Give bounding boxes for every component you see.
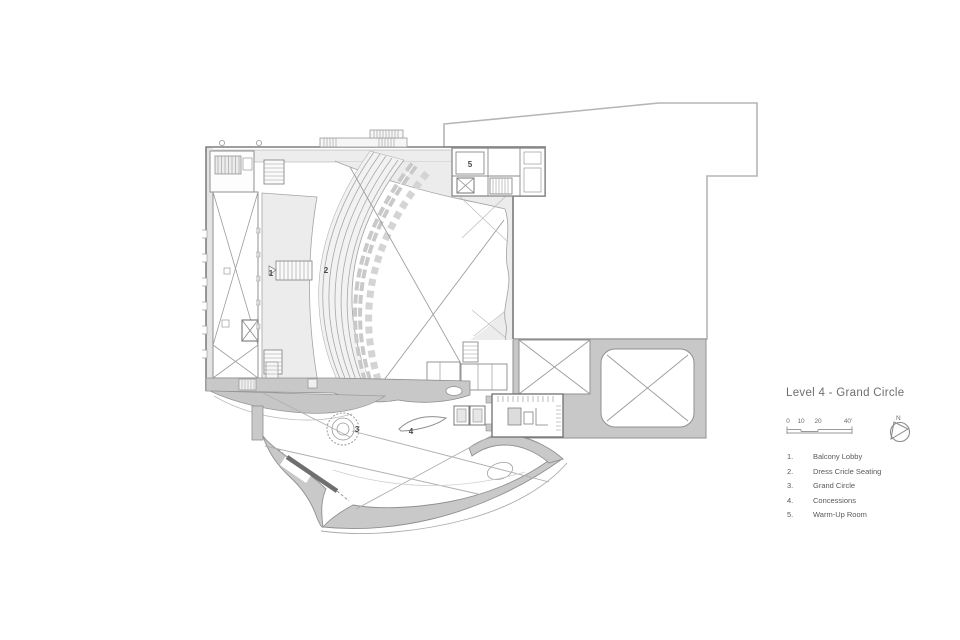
marker-5: 5 — [468, 160, 473, 169]
elevator-x-box — [242, 320, 258, 341]
marker-1: 1 — [269, 269, 274, 278]
scale-tick-20: 20 — [814, 418, 822, 425]
canopy-left-bar — [252, 406, 263, 440]
stair-hatch — [490, 178, 512, 194]
band-opening — [446, 387, 462, 396]
legend-item: 4. Concessions — [787, 494, 881, 509]
legend-item-number: 2. — [787, 465, 813, 480]
elevator-pair — [454, 406, 485, 425]
scale-bar-graphic — [787, 427, 852, 435]
adjacent-massing — [444, 103, 757, 339]
concessions-counter — [399, 417, 446, 431]
north-arrow: N — [885, 412, 915, 444]
canopy-roof — [210, 391, 567, 534]
legend-item-label: Concessions — [813, 494, 856, 509]
legend-item-label: Dress Cricle Seating — [813, 465, 881, 480]
canopy-right-hook — [469, 435, 563, 463]
canopy-bottom-crescent — [323, 459, 562, 528]
roof-vent-circle — [256, 140, 261, 145]
scale-tick-10: 10 — [797, 418, 805, 425]
shaft-x-box-square — [519, 340, 590, 394]
concessions-room — [486, 394, 563, 437]
marker-3: 3 — [355, 425, 360, 434]
scale-tick-40: 40' — [844, 418, 852, 425]
floor-plan-drawing: 1 2 3 4 5 — [0, 0, 960, 640]
canopy-opening — [485, 459, 515, 482]
legend-item-number: 1. — [787, 450, 813, 465]
warmup-room-suite — [452, 148, 545, 196]
roof-vent-circle — [219, 140, 224, 145]
marker-2: 2 — [324, 266, 329, 275]
legend-item-label: Grand Circle — [813, 479, 855, 494]
legend-item: 1. Balcony Lobby — [787, 450, 881, 465]
stair-core-nw — [210, 151, 254, 192]
legend: 1. Balcony Lobby 2. Dress Cricle Seating… — [787, 450, 881, 523]
theater-block — [202, 130, 545, 402]
page-title: Level 4 - Grand Circle — [786, 387, 904, 399]
legend-item: 2. Dress Cricle Seating — [787, 465, 881, 480]
scale-bar: 0 10 20 40' — [784, 414, 864, 438]
legend-item: 5. Warm-Up Room — [787, 508, 881, 523]
legend-item-number: 3. — [787, 479, 813, 494]
north-label: N — [896, 415, 901, 422]
seat-blocks-row — [369, 173, 427, 383]
roof-vents — [219, 130, 407, 147]
shaft-x-box-rounded — [601, 349, 694, 427]
floor-plan-sheet: 1 2 3 4 5 Level 4 - Grand Circle 0 10 20… — [0, 0, 960, 640]
canopy-left-blade — [263, 436, 326, 527]
legend-item-number: 4. — [787, 494, 813, 509]
legend-item-label: Warm-Up Room — [813, 508, 867, 523]
legend-item-number: 5. — [787, 508, 813, 523]
marker-4: 4 — [409, 427, 414, 436]
scale-tick-0: 0 — [786, 418, 790, 425]
legend-item-label: Balcony Lobby — [813, 450, 862, 465]
lobby-stair-top — [264, 160, 284, 184]
legend-item: 3. Grand Circle — [787, 479, 881, 494]
elevator-x-box — [457, 178, 474, 193]
